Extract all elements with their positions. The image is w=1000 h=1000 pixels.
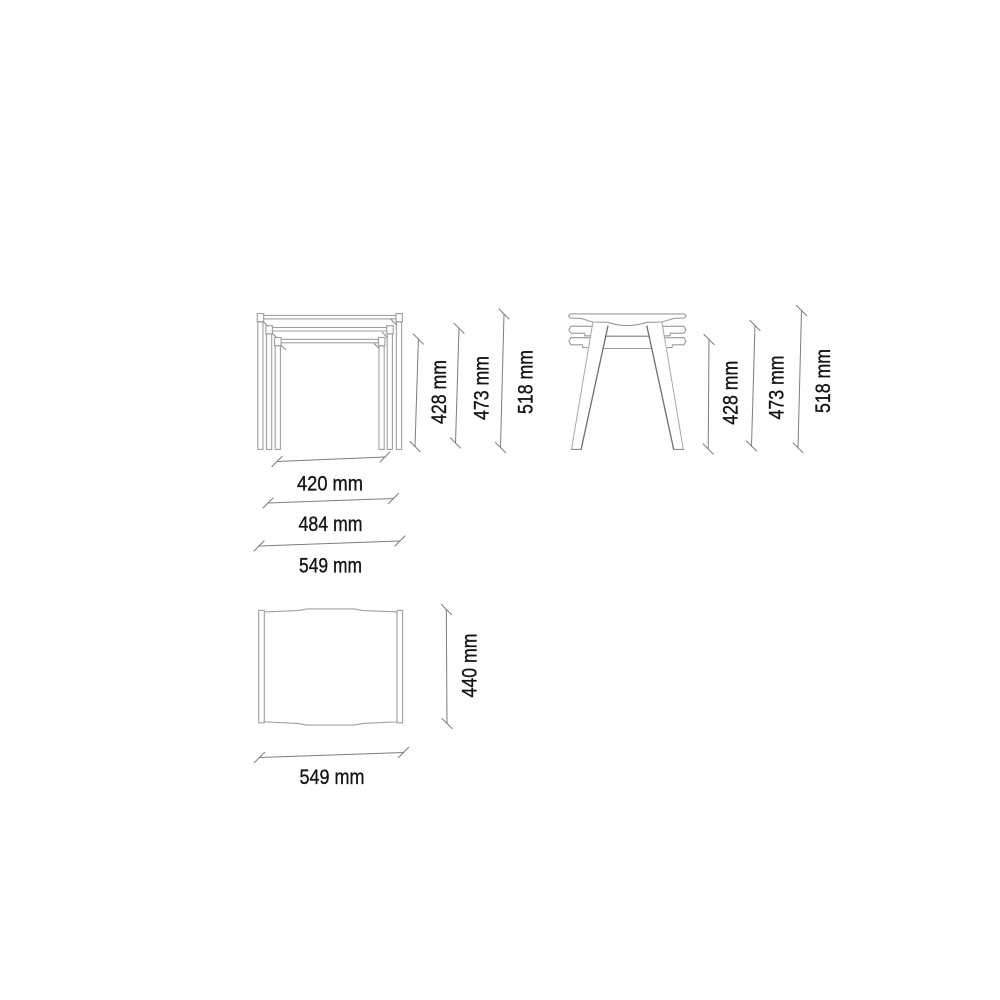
svg-text:473 mm: 473 mm [766, 356, 789, 420]
svg-text:440 mm: 440 mm [458, 634, 481, 698]
svg-text:549 mm: 549 mm [300, 766, 365, 789]
svg-text:518 mm: 518 mm [515, 350, 538, 414]
svg-text:420 mm: 420 mm [297, 473, 363, 496]
svg-text:484 mm: 484 mm [299, 513, 363, 536]
svg-text:549 mm: 549 mm [299, 555, 362, 578]
svg-text:428 mm: 428 mm [720, 361, 743, 425]
svg-text:428 mm: 428 mm [428, 360, 451, 424]
svg-text:518 mm: 518 mm [812, 349, 835, 413]
svg-text:473 mm: 473 mm [471, 356, 494, 420]
